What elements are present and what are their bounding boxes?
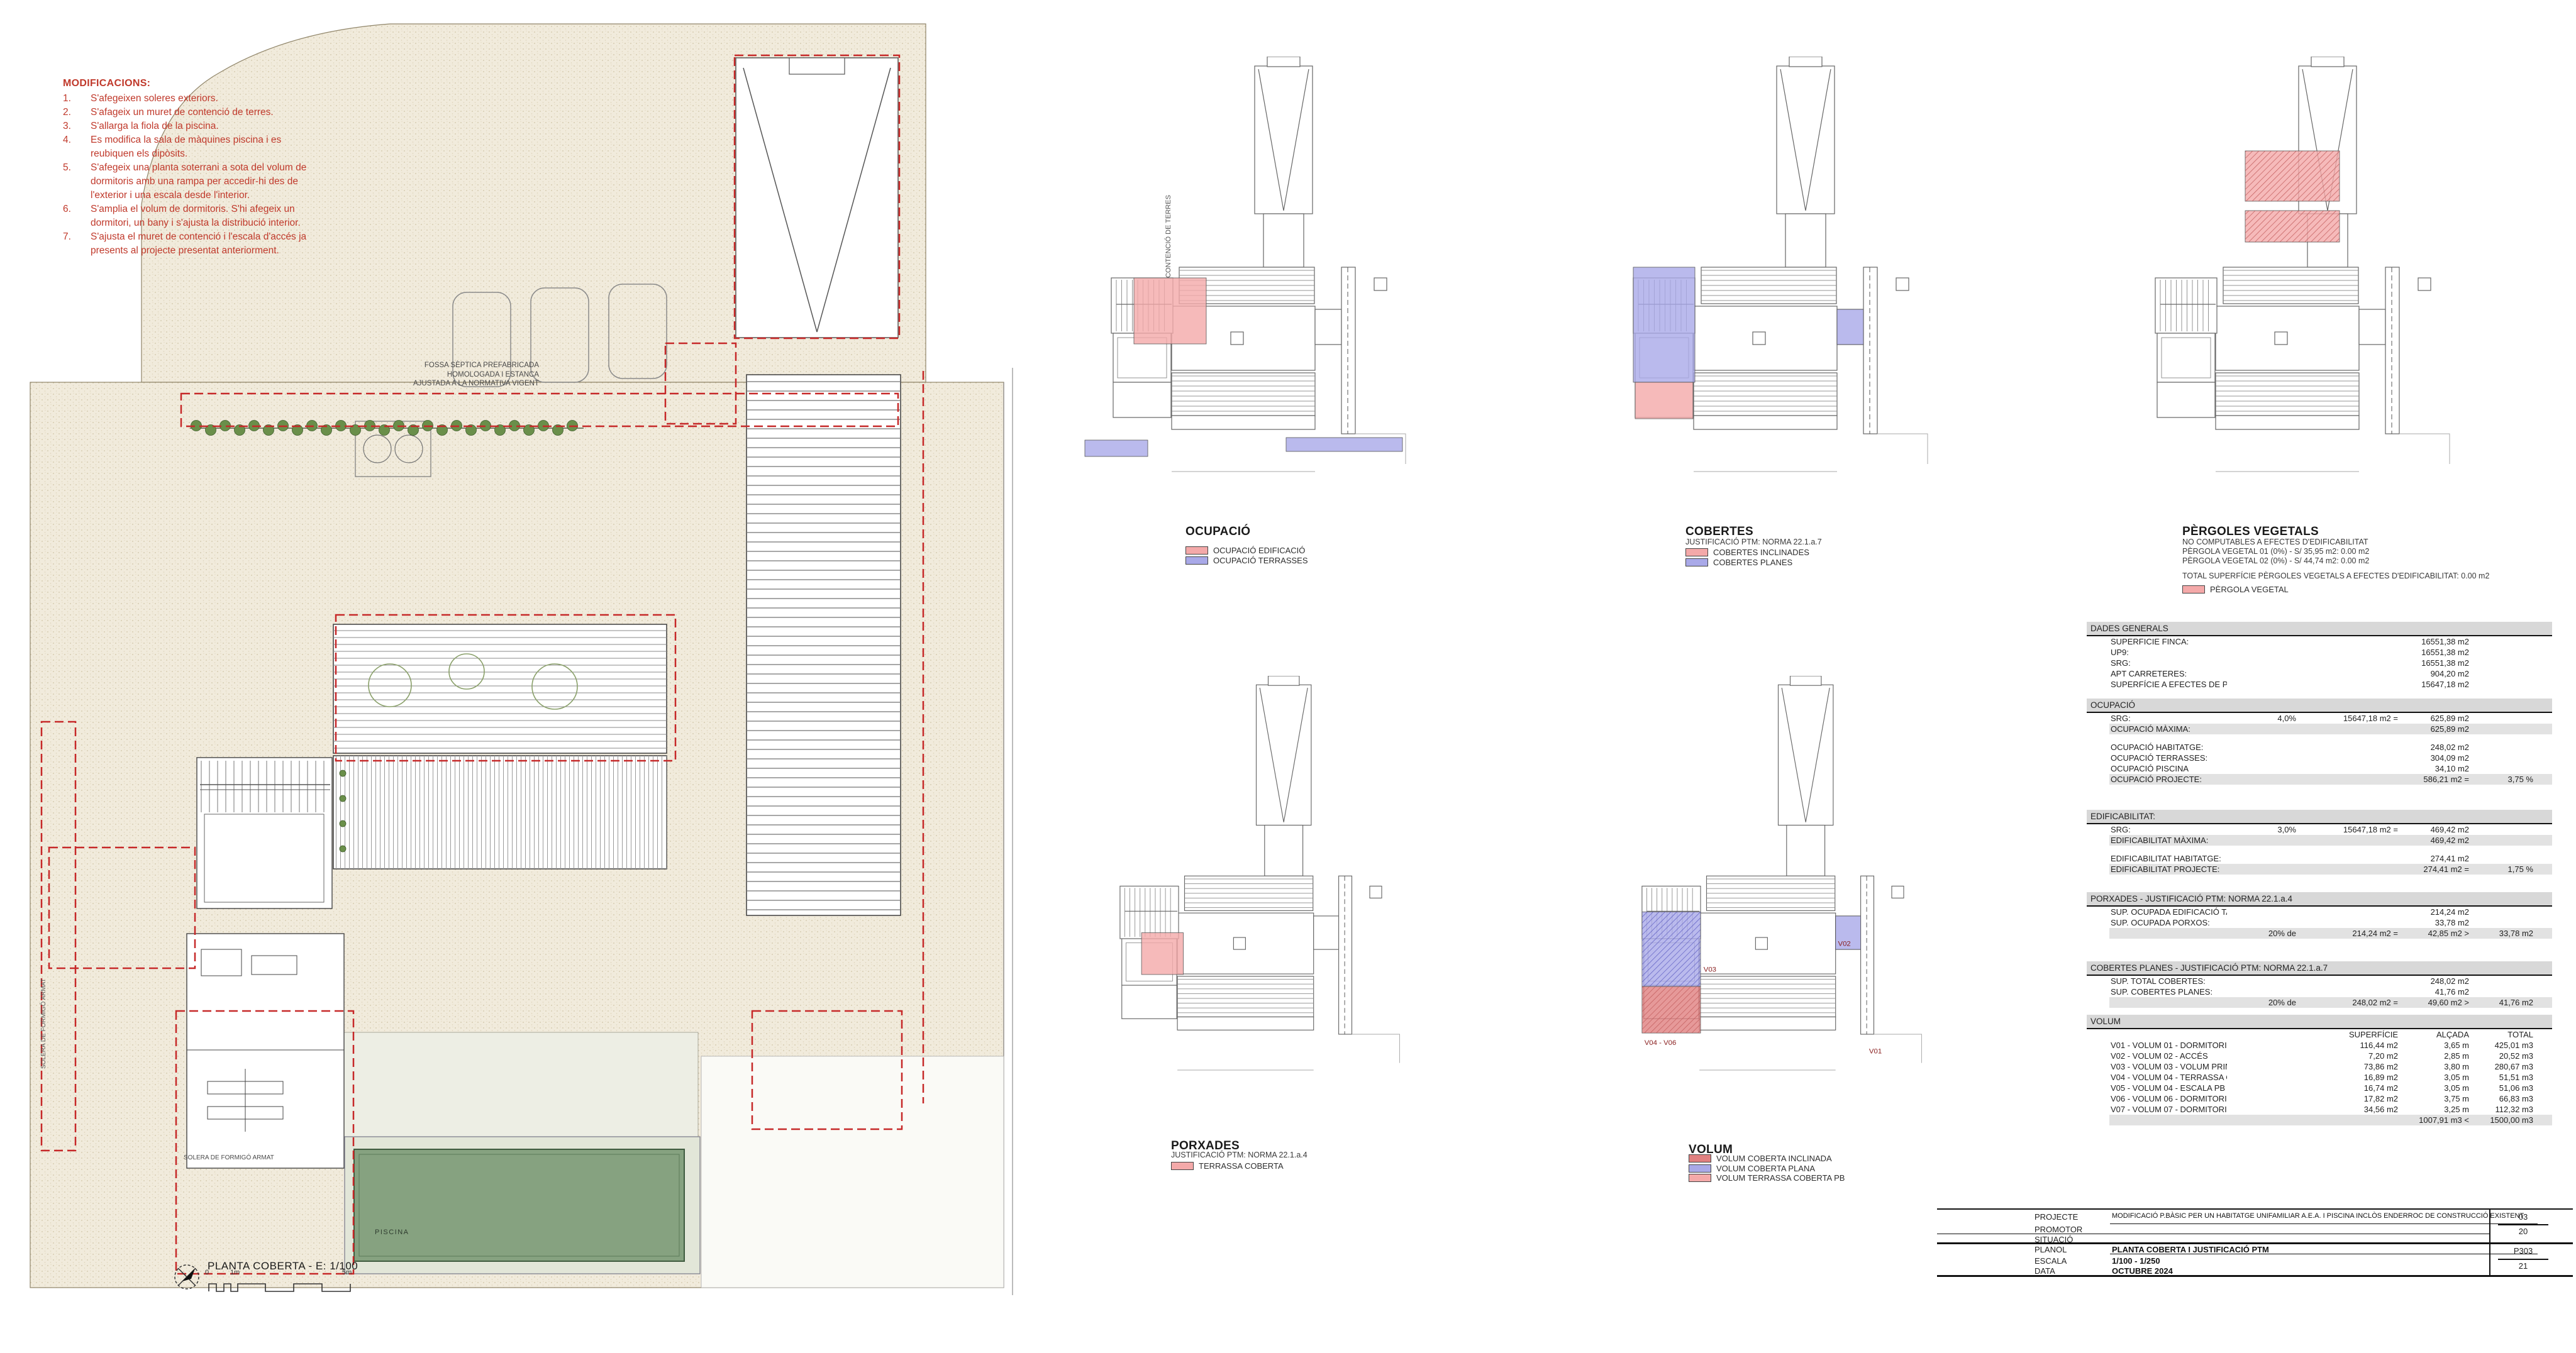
exterior-area xyxy=(701,1056,1004,1288)
drawing-sheet: MODIFICACIONS: 1.S'afegeixen soleres ext… xyxy=(0,0,2576,1353)
table-cell: 16551,38 m2 xyxy=(2398,647,2469,658)
table-cell: SUP. COBERTES PLANES: xyxy=(2087,986,2227,997)
table-row: UP9:16551,38 m2 xyxy=(2087,647,2552,658)
roof-block-a xyxy=(333,624,667,753)
table-title: COBERTES PLANES - JUSTIFICACIÓ PTM: NORM… xyxy=(2087,961,2552,976)
table-cell xyxy=(2296,907,2398,917)
legend-swatch xyxy=(1689,1174,1711,1182)
table-cell: SRG: xyxy=(2087,713,2227,724)
table-3: EDIFICABILITAT:SRG:3,0%15647,18 m2 =469,… xyxy=(2087,810,2552,875)
porxades-diagram: PORXADESJUSTIFICACIÓ PTM: NORMA 22.1.a.4… xyxy=(1069,676,1503,1094)
table-cell: EDIFICABILITAT HABITATGE: xyxy=(2087,853,2227,864)
legend-label: COBERTES PLANES xyxy=(1713,558,1792,567)
volum-diagram: V01V02V03V04 - V06VOLUMVOLUM COBERTA INC… xyxy=(1591,676,2025,1094)
table-cell: V05 - VOLUM 04 - ESCALA PB xyxy=(2087,1083,2227,1093)
table-row: SRG:3,0%15647,18 m2 =469,42 m2 xyxy=(2087,824,2552,835)
table-cell xyxy=(2296,636,2398,647)
pergoles-legend: PÈRGOLA VEGETAL xyxy=(2182,585,2289,595)
table-row: OCUPACIÓ HABITATGE:248,02 m2 xyxy=(2087,742,2552,753)
table-cell: SUPERFÍCIE A EFECTES DE PARÀMETRES URBAN… xyxy=(2087,679,2227,690)
table-title: OCUPACIÓ xyxy=(2087,699,2552,713)
porxades-legend: TERRASSA COBERTA xyxy=(1171,1161,1284,1171)
table-cell: 248,02 m2 xyxy=(2398,976,2469,986)
table-cell: 4,0% xyxy=(2227,713,2296,724)
table-cell xyxy=(2296,724,2398,734)
table-row: V03 - VOLUM 03 - VOLUM PRINCIPAL73,86 m2… xyxy=(2087,1061,2552,1072)
legend-label: PÈRGOLA VEGETAL xyxy=(2210,585,2289,594)
table-cell xyxy=(2469,824,2533,835)
table-cell: V01 - VOLUM 01 - DORMITORIS xyxy=(2087,1040,2227,1051)
table-cell xyxy=(2469,647,2533,658)
table-cell: SUPERFÍCIE xyxy=(2296,1029,2398,1040)
table-cell: 15647,18 m2 = xyxy=(2296,824,2398,835)
ocupacio-title: OCUPACIÓ xyxy=(1185,525,1250,539)
table-cell xyxy=(2227,753,2296,763)
table-row: V07 - VOLUM 07 - DORMITORI PP1 COBERTA P… xyxy=(2087,1104,2552,1115)
table-cell xyxy=(2087,1115,2227,1125)
table-row: SUPERFÍCIE A EFECTES DE PARÀMETRES URBAN… xyxy=(2087,679,2552,690)
table-cell: V04 - VOLUM 04 - TERRASSA COBERTA PB xyxy=(2087,1072,2227,1083)
legend-item: OCUPACIÓ EDIFICACIÓ xyxy=(1185,546,1308,556)
table-cell: V03 - VOLUM 03 - VOLUM PRINCIPAL xyxy=(2087,1061,2227,1072)
table-cell: 3,65 m xyxy=(2398,1040,2469,1051)
table-row: SRG:4,0%15647,18 m2 =625,89 m2 xyxy=(2087,713,2552,724)
svg-text:V01: V01 xyxy=(1869,1047,1882,1055)
legend-label: TERRASSA COBERTA xyxy=(1199,1161,1284,1171)
table-cell xyxy=(2296,1115,2398,1125)
table-cell: 625,89 m2 xyxy=(2398,713,2469,724)
table-cell xyxy=(2227,907,2296,917)
table-cell: TOTAL xyxy=(2469,1029,2533,1040)
table-cell xyxy=(2227,724,2296,734)
pergoles-footprint xyxy=(2113,57,2547,497)
plan-label-fossa: FOSSA SÈPTICA PREFABRICADA HOMOLOGADA I … xyxy=(318,361,539,389)
table-row: V05 - VOLUM 04 - ESCALA PB16,74 m23,05 m… xyxy=(2087,1083,2552,1093)
table-cell xyxy=(2296,986,2398,997)
table-cell: 214,24 m2 = xyxy=(2296,928,2398,939)
porxades-subtitle: JUSTIFICACIÓ PTM: NORMA 22.1.a.4 xyxy=(1171,1151,1307,1160)
table-cell: 16551,38 m2 xyxy=(2398,636,2469,647)
table-cell xyxy=(2227,835,2296,846)
cobertes-subtitle: JUSTIFICACIÓ PTM: NORMA 22.1.a.7 xyxy=(1685,538,1822,547)
legend-label: OCUPACIÓ EDIFICACIÓ xyxy=(1213,546,1305,555)
legend-label: OCUPACIÓ TERRASSES xyxy=(1213,556,1308,565)
table-cell: 248,02 m2 xyxy=(2398,742,2469,753)
pergoles-title: PÈRGOLES VEGETALS xyxy=(2182,525,2319,539)
table-cell xyxy=(2469,835,2533,846)
table-cell xyxy=(2296,864,2398,875)
table-cell: 280,67 m3 xyxy=(2469,1061,2533,1072)
table-cell xyxy=(2296,679,2398,690)
cobertes-diagram: COBERTESJUSTIFICACIÓ PTM: NORMA 22.1.a.7… xyxy=(1591,57,2025,497)
porxades-footprint xyxy=(1069,676,1503,1094)
table-row: OCUPACIÓ PROJECTE:586,21 m2 =3,75 % xyxy=(2087,774,2552,785)
table-row: SUP. OCUPADA PORXOS:33,78 m2 xyxy=(2087,917,2552,928)
table-cell: SUP. TOTAL COBERTES: xyxy=(2087,976,2227,986)
table-cell: 116,44 m2 xyxy=(2296,1040,2398,1051)
table-cell: 3,05 m xyxy=(2398,1083,2469,1093)
machine-room-f xyxy=(187,934,344,1168)
table-cell xyxy=(2227,864,2296,875)
svg-text:V03: V03 xyxy=(1704,966,1716,973)
table-cell: 42,85 m2 > xyxy=(2398,928,2469,939)
table-cell xyxy=(2227,917,2296,928)
table-cell: 33,78 m2 xyxy=(2469,928,2533,939)
modification-item: 3.S'allarga la fiola de la piscina. xyxy=(63,119,358,133)
table-cell xyxy=(2087,928,2227,939)
legend-label: COBERTES INCLINADES xyxy=(1713,548,1809,557)
scale-mark-5m: 5m xyxy=(342,1269,352,1276)
titleblock-value-planol: PLANTA COBERTA I JUSTIFICACIÓ PTM xyxy=(2112,1245,2269,1254)
titleblock-label-escala: ESCALA xyxy=(2035,1256,2067,1266)
pergoles-diagram: PÈRGOLES VEGETALSNO COMPUTABLES A EFECTE… xyxy=(2113,57,2547,497)
volum-legend: VOLUM COBERTA INCLINADAVOLUM COBERTA PLA… xyxy=(1689,1154,1845,1183)
table-cell: 469,42 m2 xyxy=(2398,835,2469,846)
table-cell xyxy=(2227,774,2296,785)
cobertes-footprint xyxy=(1591,57,2025,497)
sheet-total: 20 xyxy=(2498,1227,2548,1236)
table-cell xyxy=(2087,997,2227,1008)
table-cell: 49,60 m2 > xyxy=(2398,997,2469,1008)
table-cell: SRG: xyxy=(2087,824,2227,835)
table-row: V02 - VOLUM 02 - ACCÉS7,20 m22,85 m20,52… xyxy=(2087,1051,2552,1061)
table-cell xyxy=(2227,1083,2296,1093)
pergola-block-b xyxy=(333,756,667,869)
table-cell: 34,56 m2 xyxy=(2296,1104,2398,1115)
table-title: DADES GENERALS xyxy=(2087,622,2552,636)
table-row: OCUPACIÓ MÀXIMA:625,89 m2 xyxy=(2087,724,2552,734)
table-cell: 112,32 m3 xyxy=(2469,1104,2533,1115)
table-row xyxy=(2087,846,2552,853)
legend-swatch xyxy=(2182,585,2205,594)
table-cell xyxy=(2227,1115,2296,1125)
table-cell xyxy=(2227,763,2296,774)
table-cell: 20% de xyxy=(2227,997,2296,1008)
table-cell: 16,74 m2 xyxy=(2296,1083,2398,1093)
table-cell: 904,20 m2 xyxy=(2398,668,2469,679)
table-cell xyxy=(2469,679,2533,690)
table-cell xyxy=(2296,742,2398,753)
table-cell xyxy=(2296,668,2398,679)
modification-item: 1.S'afegeixen soleres exteriors. xyxy=(63,92,358,106)
table-cell xyxy=(2227,1029,2296,1040)
pergoles-subtitle: NO COMPUTABLES A EFECTES D'EDIFICABILITA… xyxy=(2182,538,2368,547)
diagram-note: PÈRGOLA VEGETAL 02 (0%) - S/ 44,74 m2: 0… xyxy=(2182,556,2489,566)
table-cell: 41,76 m2 xyxy=(2469,997,2533,1008)
plan-code: P303 xyxy=(2498,1246,2548,1256)
table-1: DADES GENERALSSUPERFICIE FINCA:16551,38 … xyxy=(2087,622,2552,690)
cobertes-title: COBERTES xyxy=(1685,525,1753,539)
table-cell: 3,75 % xyxy=(2469,774,2533,785)
table-cell: 274,41 m2 xyxy=(2398,853,2469,864)
table-cell: 41,76 m2 xyxy=(2398,986,2469,997)
table-cell: ALÇADA xyxy=(2398,1029,2469,1040)
table-cell: EDIFICABILITAT MÀXIMA: xyxy=(2087,835,2227,846)
legend-label: VOLUM COBERTA PLANA xyxy=(1716,1164,1815,1173)
table-cell xyxy=(2469,713,2533,724)
titleblock-value-data: OCTUBRE 2024 xyxy=(2112,1266,2173,1276)
table-cell xyxy=(2227,1104,2296,1115)
diagram-note: TOTAL SUPERFÍCIE PÈRGOLES VEGETALS A EFE… xyxy=(2182,572,2489,581)
plan-label-solera-left: SOLERA DE FORMIGÓ ARMAT xyxy=(40,978,47,1069)
table-cell: SUP. OCUPADA EDIFICACIÓ TANCADA: xyxy=(2087,907,2227,917)
legend-item: TERRASSA COBERTA xyxy=(1171,1161,1284,1171)
legend-swatch xyxy=(1185,546,1208,555)
table-row: OCUPACIÓ TERRASSES:304,09 m2 xyxy=(2087,753,2552,763)
table-cell: 20% de xyxy=(2227,928,2296,939)
titleblock-label-promotor: PROMOTOR xyxy=(2035,1225,2082,1234)
table-cell xyxy=(2227,1061,2296,1072)
titleblock-label-situació: SITUACIÓ xyxy=(2035,1235,2073,1244)
scale-mark-0: 0 xyxy=(205,1269,209,1276)
table-cell xyxy=(2296,835,2398,846)
table-cell: 3,75 m xyxy=(2398,1093,2469,1104)
pool xyxy=(345,1137,700,1274)
table-cell xyxy=(2469,636,2533,647)
legend-item: VOLUM COBERTA INCLINADA xyxy=(1689,1154,1845,1164)
table-cell xyxy=(2469,658,2533,668)
modifications-list: 1.S'afegeixen soleres exteriors.2.S'afag… xyxy=(63,92,358,258)
table-2: OCUPACIÓSRG:4,0%15647,18 m2 =625,89 m2OC… xyxy=(2087,699,2552,785)
table-cell: 73,86 m2 xyxy=(2296,1061,2398,1072)
stair-block-e xyxy=(197,758,332,908)
legend-swatch xyxy=(1685,558,1708,566)
table-cell: 1,75 % xyxy=(2469,864,2533,875)
table-cell: OCUPACIÓ HABITATGE: xyxy=(2087,742,2227,753)
table-title: VOLUM xyxy=(2087,1015,2552,1029)
modification-item: 7.S'ajusta el muret de contenció i l'esc… xyxy=(63,230,358,258)
ocupacio-footprint xyxy=(1069,57,1503,497)
table-5: COBERTES PLANES - JUSTIFICACIÓ PTM: NORM… xyxy=(2087,961,2552,1008)
table-row: SUP. TOTAL COBERTES:248,02 m2 xyxy=(2087,976,2552,986)
legend-swatch xyxy=(1685,548,1708,556)
table-cell xyxy=(2469,976,2533,986)
table-row: EDIFICABILITAT PROJECTE:274,41 m2 =1,75 … xyxy=(2087,864,2552,875)
diagram-note: PÈRGOLA VEGETAL 01 (0%) - S/ 35,95 m2: 0… xyxy=(2182,547,2489,556)
table-cell: 33,78 m2 xyxy=(2398,917,2469,928)
table-cell: 1007,91 m3 < xyxy=(2398,1115,2469,1125)
table-cell: 214,24 m2 xyxy=(2398,907,2469,917)
table-title: PORXADES - JUSTIFICACIÓ PTM: NORMA 22.1.… xyxy=(2087,892,2552,907)
table-cell xyxy=(2296,647,2398,658)
table-cell xyxy=(2469,917,2533,928)
ocupacio-diagram: OCUPACIÓOCUPACIÓ EDIFICACIÓOCUPACIÓ TERR… xyxy=(1069,57,1503,497)
table-cell xyxy=(2296,774,2398,785)
table-row: EDIFICABILITAT HABITATGE:274,41 m2 xyxy=(2087,853,2552,864)
table-cell xyxy=(2227,976,2296,986)
table-cell: 248,02 m2 = xyxy=(2296,997,2398,1008)
table-row: 20% de214,24 m2 =42,85 m2 >33,78 m2 xyxy=(2087,928,2552,939)
table-cell xyxy=(2469,986,2533,997)
table-header-row: SUPERFÍCIEALÇADATOTAL xyxy=(2087,1029,2552,1040)
table-cell xyxy=(2227,853,2296,864)
table-cell: 15647,18 m2 = xyxy=(2296,713,2398,724)
table-cell xyxy=(2296,853,2398,864)
table-cell xyxy=(2469,853,2533,864)
table-cell xyxy=(2296,976,2398,986)
table-row: SRG:16551,38 m2 xyxy=(2087,658,2552,668)
table-cell xyxy=(2227,679,2296,690)
table-row: V01 - VOLUM 01 - DORMITORIS116,44 m23,65… xyxy=(2087,1040,2552,1051)
table-cell: 3,05 m xyxy=(2398,1072,2469,1083)
table-cell: 425,01 m3 xyxy=(2469,1040,2533,1051)
table-cell xyxy=(2469,724,2533,734)
ocupacio-legend: OCUPACIÓ EDIFICACIÓOCUPACIÓ TERRASSES xyxy=(1185,546,1308,565)
table-cell: SRG: xyxy=(2087,658,2227,668)
table-row: SUP. COBERTES PLANES:41,76 m2 xyxy=(2087,986,2552,997)
table-cell xyxy=(2227,636,2296,647)
legend-swatch xyxy=(1185,556,1208,565)
scale-mark-1m: 1m xyxy=(230,1269,240,1276)
plan-label-solera-bottom: SOLERA DE FORMIGÓ ARMAT xyxy=(184,1154,274,1161)
table-row: 1007,91 m3 <1500,00 m3 xyxy=(2087,1115,2552,1125)
table-cell: OCUPACIÓ TERRASSES: xyxy=(2087,753,2227,763)
table-cell: 625,89 m2 xyxy=(2398,724,2469,734)
table-cell: APT CARRETERES: xyxy=(2087,668,2227,679)
legend-label: VOLUM COBERTA INCLINADA xyxy=(1716,1154,1832,1163)
modification-item: 2.S'afageix un muret de contenció de ter… xyxy=(63,106,358,119)
table-cell xyxy=(2227,1051,2296,1061)
table-cell: OCUPACIÓ PISCINA xyxy=(2087,763,2227,774)
legend-label: VOLUM TERRASSA COBERTA PB xyxy=(1716,1173,1845,1183)
table-cell xyxy=(2469,763,2533,774)
titleblock-label-planol: PLANOL xyxy=(2035,1245,2067,1254)
table-row: APT CARRETERES:904,20 m2 xyxy=(2087,668,2552,679)
table-cell: V06 - VOLUM 06 - DORMITORI PP1 COBERTA I… xyxy=(2087,1093,2227,1104)
table-cell xyxy=(2227,1040,2296,1051)
table-cell xyxy=(2296,658,2398,668)
title-block: PROJECTEMODIFICACIÓ P.BÀSIC PER UN HABIT… xyxy=(1937,1206,2573,1279)
table-cell: SUP. OCUPADA PORXOS: xyxy=(2087,917,2227,928)
table-row: SUPERFICIE FINCA:16551,38 m2 xyxy=(2087,636,2552,647)
table-cell: UP9: xyxy=(2087,647,2227,658)
table-cell: 3,0% xyxy=(2227,824,2296,835)
table-cell: 274,41 m2 = xyxy=(2398,864,2469,875)
table-cell: 20,52 m3 xyxy=(2469,1051,2533,1061)
table-cell: 3,80 m xyxy=(2398,1061,2469,1072)
table-cell xyxy=(2227,658,2296,668)
table-cell: EDIFICABILITAT PROJECTE: xyxy=(2087,864,2227,875)
table-row: V04 - VOLUM 04 - TERRASSA COBERTA PB16,8… xyxy=(2087,1072,2552,1083)
table-cell xyxy=(2227,1072,2296,1083)
table-cell: 51,06 m3 xyxy=(2469,1083,2533,1093)
legend-swatch xyxy=(1689,1164,1711,1173)
table-cell: 3,25 m xyxy=(2398,1104,2469,1115)
table-cell xyxy=(2469,742,2533,753)
table-4: PORXADES - JUSTIFICACIÓ PTM: NORMA 22.1.… xyxy=(2087,892,2552,939)
table-row: EDIFICABILITAT MÀXIMA:469,42 m2 xyxy=(2087,835,2552,846)
modification-item: 4.Es modifica la sala de màquines piscin… xyxy=(63,133,358,161)
table-cell: 16,89 m2 xyxy=(2296,1072,2398,1083)
table-cell: 7,20 m2 xyxy=(2296,1051,2398,1061)
table-cell: SUPERFICIE FINCA: xyxy=(2087,636,2227,647)
table-cell xyxy=(2296,763,2398,774)
table-6: VOLUMSUPERFÍCIEALÇADATOTALV01 - VOLUM 01… xyxy=(2087,1015,2552,1125)
table-cell: OCUPACIÓ PROJECTE: xyxy=(2087,774,2227,785)
table-cell: 304,09 m2 xyxy=(2398,753,2469,763)
legend-item: COBERTES PLANES xyxy=(1685,558,1809,568)
legend-item: COBERTES INCLINADES xyxy=(1685,548,1809,558)
table-title: EDIFICABILITAT: xyxy=(2087,810,2552,824)
modification-item: 6.S'amplia el volum de dormitoris. S'hi … xyxy=(63,202,358,230)
table-cell: 16551,38 m2 xyxy=(2398,658,2469,668)
table-cell xyxy=(2227,986,2296,997)
table-cell xyxy=(2469,907,2533,917)
table-row: V06 - VOLUM 06 - DORMITORI PP1 COBERTA I… xyxy=(2087,1093,2552,1104)
table-cell: 34,10 m2 xyxy=(2398,763,2469,774)
table-cell xyxy=(2469,668,2533,679)
table-cell: 469,42 m2 xyxy=(2398,824,2469,835)
table-cell xyxy=(2227,647,2296,658)
table-cell: 586,21 m2 = xyxy=(2398,774,2469,785)
gable-roof-d xyxy=(736,58,898,338)
sheet-number: 03 xyxy=(2498,1212,2548,1222)
plan-label-piscina: PISCINA xyxy=(375,1229,409,1236)
svg-text:V04 - V06: V04 - V06 xyxy=(1645,1039,1677,1047)
table-cell: 1500,00 m3 xyxy=(2469,1115,2533,1125)
titleblock-label-projecte: PROJECTE xyxy=(2035,1212,2078,1222)
table-cell xyxy=(2296,753,2398,763)
table-cell: 15647,18 m2 xyxy=(2398,679,2469,690)
modifications-note: MODIFICACIONS: 1.S'afegeixen soleres ext… xyxy=(63,78,358,258)
table-cell: OCUPACIÓ MÀXIMA: xyxy=(2087,724,2227,734)
table-row: OCUPACIÓ PISCINA34,10 m2 xyxy=(2087,763,2552,774)
table-row: SUP. OCUPADA EDIFICACIÓ TANCADA:214,24 m… xyxy=(2087,907,2552,917)
volum-footprint: V01V02V03V04 - V06 xyxy=(1591,676,2025,1094)
table-cell: 2,85 m xyxy=(2398,1051,2469,1061)
table-cell: 51,51 m3 xyxy=(2469,1072,2533,1083)
cobertes-legend: COBERTES INCLINADESCOBERTES PLANES xyxy=(1685,548,1809,567)
table-cell xyxy=(2227,668,2296,679)
titleblock-value-projecte: MODIFICACIÓ P.BÀSIC PER UN HABITATGE UNI… xyxy=(2112,1212,2524,1220)
pergoles-notes: PÈRGOLA VEGETAL 01 (0%) - S/ 35,95 m2: 0… xyxy=(2182,547,2489,581)
table-cell: V02 - VOLUM 02 - ACCÉS xyxy=(2087,1051,2227,1061)
table-cell xyxy=(2296,917,2398,928)
titleblock-value-escala: 1/100 - 1/250 xyxy=(2112,1256,2160,1266)
table-row xyxy=(2087,734,2552,742)
table-cell xyxy=(2227,742,2296,753)
titleblock-label-data: DATA xyxy=(2035,1266,2055,1276)
svg-text:V02: V02 xyxy=(1838,940,1851,947)
plan-code-den: 21 xyxy=(2498,1261,2548,1271)
legend-swatch xyxy=(1689,1154,1711,1162)
table-cell xyxy=(2087,1029,2227,1040)
table-row: 20% de248,02 m2 =49,60 m2 >41,76 m2 xyxy=(2087,997,2552,1008)
legend-swatch xyxy=(1171,1162,1194,1170)
modification-item: 5.S'afegeix una planta soterrani a sota … xyxy=(63,161,358,202)
legend-item: VOLUM COBERTA PLANA xyxy=(1689,1164,1845,1174)
table-cell xyxy=(2227,1093,2296,1104)
legend-item: OCUPACIÓ TERRASSES xyxy=(1185,556,1308,566)
table-cell: 66,83 m3 xyxy=(2469,1093,2533,1104)
table-cell xyxy=(2469,753,2533,763)
table-cell: 17,82 m2 xyxy=(2296,1093,2398,1104)
roof-strip-c xyxy=(747,375,901,915)
legend-item: PÈRGOLA VEGETAL xyxy=(2182,585,2289,595)
legend-item: VOLUM TERRASSA COBERTA PB xyxy=(1689,1173,1845,1183)
modifications-title: MODIFICACIONS: xyxy=(63,78,358,89)
table-cell: V07 - VOLUM 07 - DORMITORI PP1 COBERTA P… xyxy=(2087,1104,2227,1115)
